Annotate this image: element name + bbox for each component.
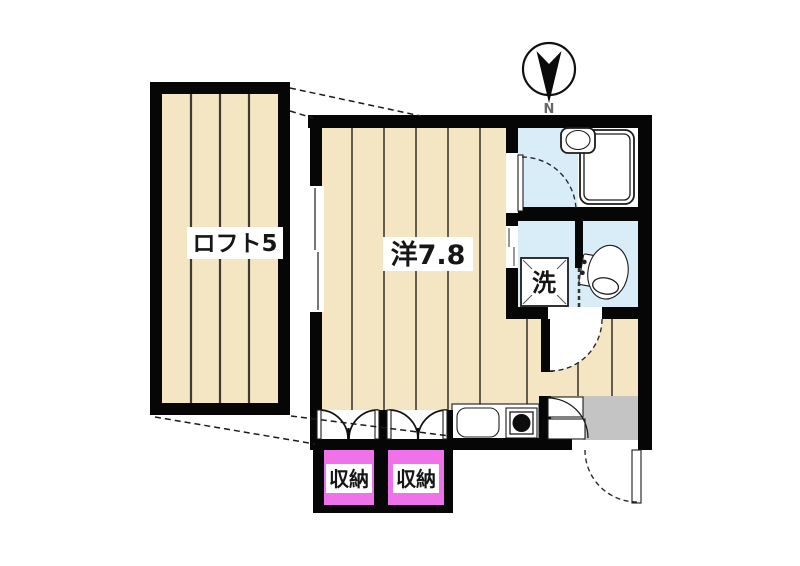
bath-sink-bowl: [566, 131, 590, 150]
loft-label: ロフト5: [192, 231, 277, 257]
washroom-door-opening: [548, 307, 602, 319]
main-room-label: 洋7.8: [391, 239, 466, 271]
wall-washroom-toilet: [575, 221, 583, 268]
entrance-door-arc: [585, 450, 637, 502]
genkan-entry-floor: [583, 396, 638, 440]
floor-plan: N ロフト5 洋7.8 収納 収納 洗: [0, 0, 800, 566]
bathroom-door-opening: [506, 153, 518, 213]
compass: N: [523, 43, 575, 117]
kitchen-sink: [457, 408, 499, 437]
shoe-cabinet-upper: [548, 397, 583, 417]
washer-label: 洗: [532, 269, 556, 297]
floor-plan-page: N ロフト5 洋7.8 収納 収納 洗: [0, 0, 800, 566]
wall-right: [638, 115, 652, 450]
storage-right-label: 収納: [396, 467, 436, 491]
storage-right-leaf-a: [387, 410, 391, 439]
storage-left-label: 収納: [329, 467, 369, 491]
wall-top: [308, 115, 652, 128]
storage-left-leaf-b: [375, 410, 379, 439]
washroom-sliding-door-opening: [506, 226, 518, 268]
entrance-door-leaf: [632, 450, 641, 503]
storage-left-leaf-a: [317, 410, 321, 439]
compass-north-label: N: [544, 102, 555, 117]
stove-burner: [513, 414, 531, 432]
wall-bath-washroom: [506, 207, 652, 221]
main-room-floor: [316, 121, 512, 440]
bathroom-door-leaf: [518, 155, 523, 211]
shoe-cabinet-lower: [548, 419, 585, 439]
